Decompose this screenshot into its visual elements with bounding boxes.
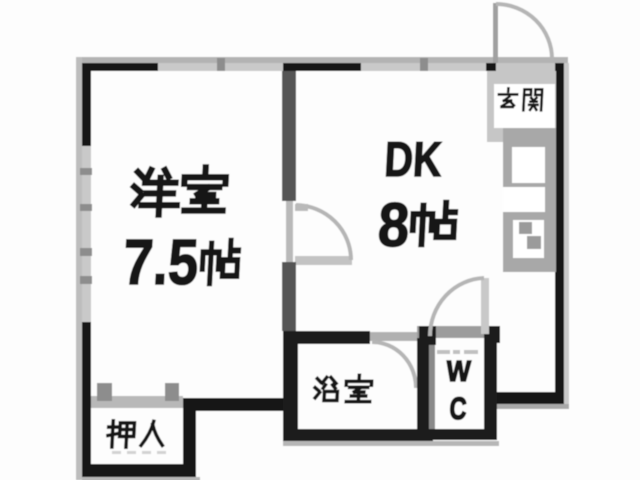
svg-text:DK: DK (383, 133, 443, 187)
svg-text:W: W (446, 356, 472, 388)
svg-text:8: 8 (376, 191, 411, 260)
svg-text:C: C (449, 391, 468, 426)
svg-text:7.5: 7.5 (121, 226, 200, 298)
